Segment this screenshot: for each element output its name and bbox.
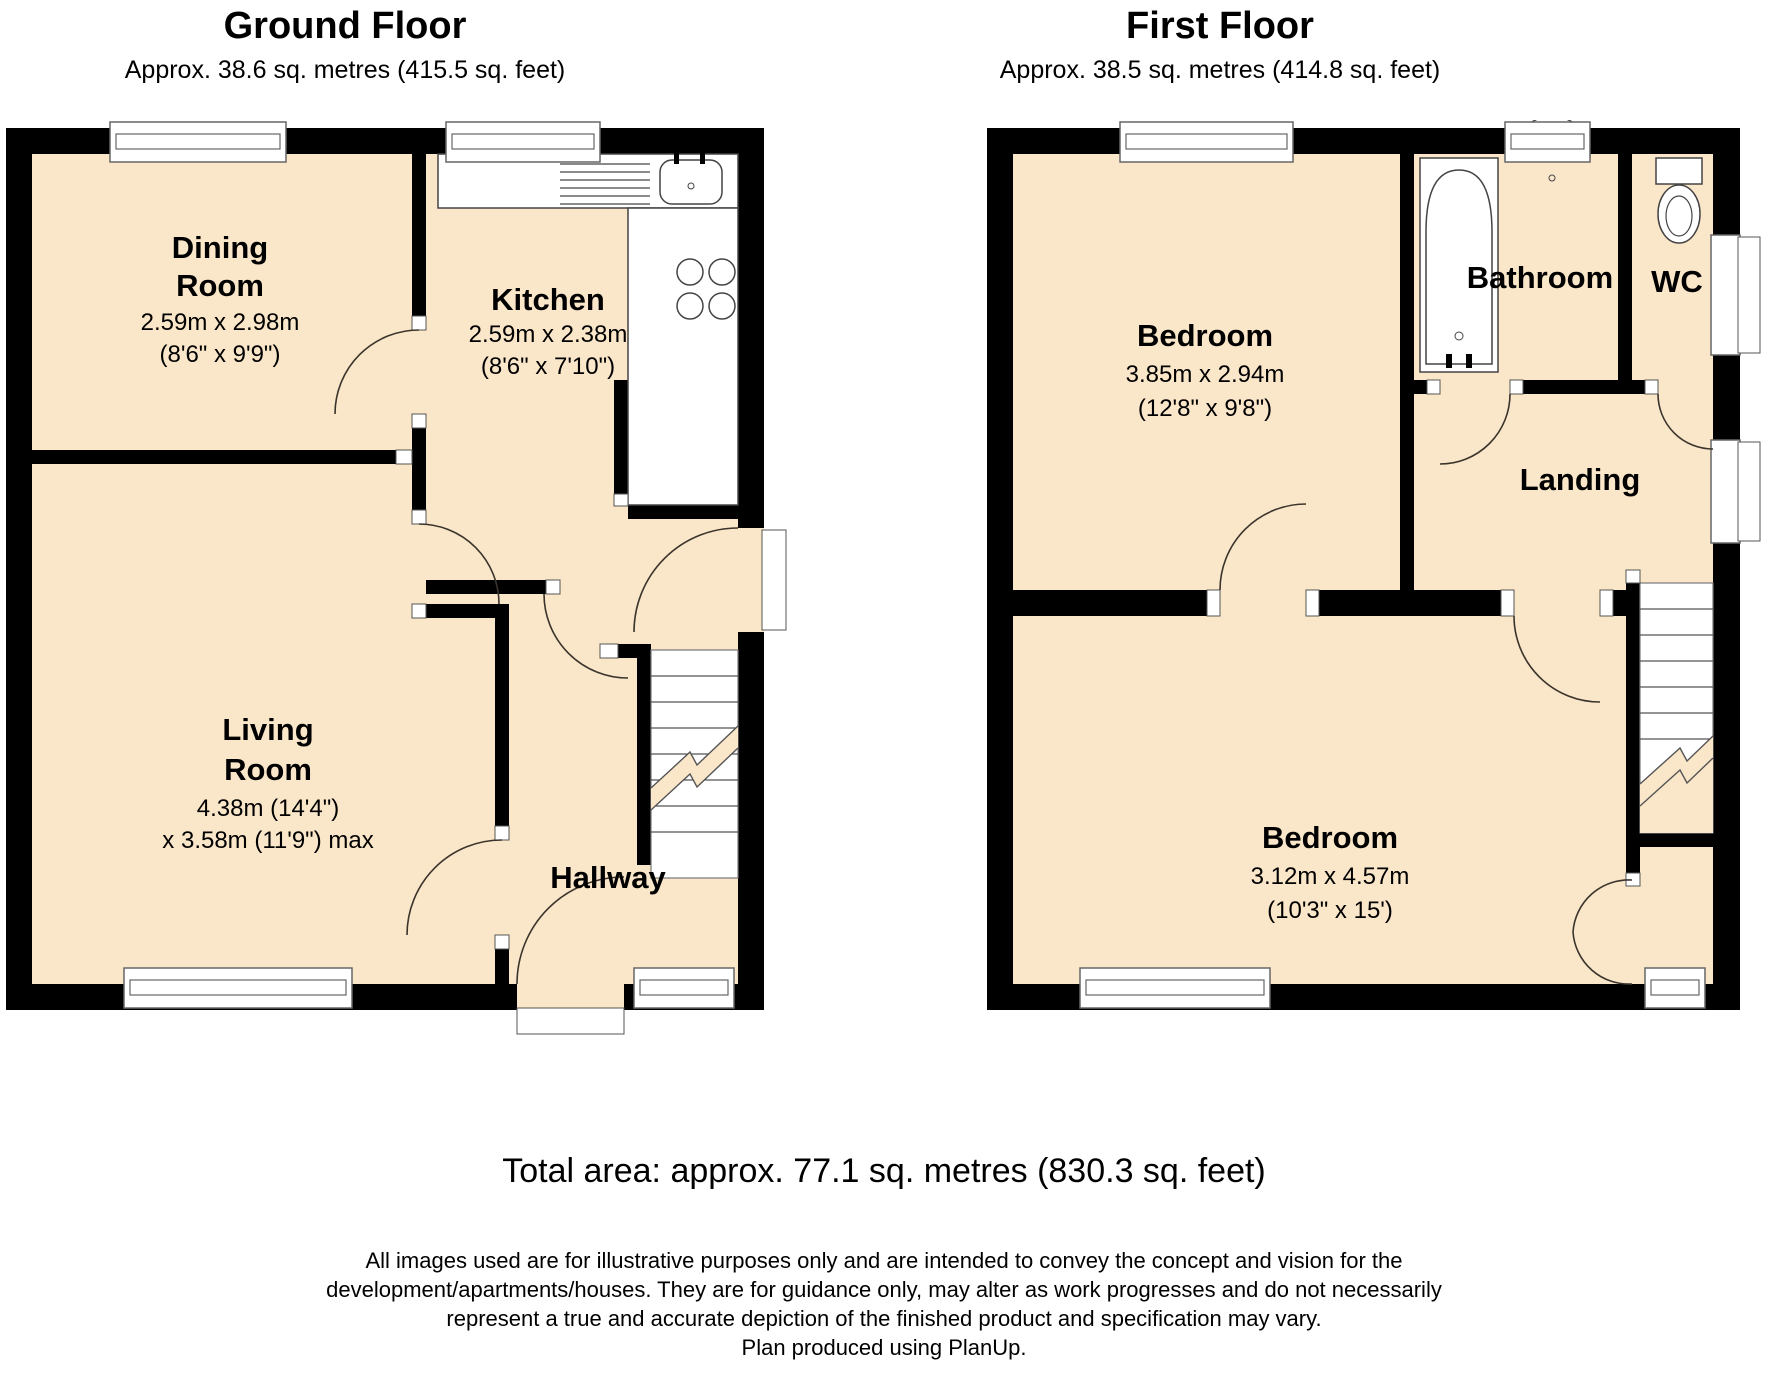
dining-window — [110, 122, 286, 162]
disclaimer-line3: represent a true and accurate depiction … — [0, 1304, 1768, 1333]
ground-floor-stairs — [651, 650, 738, 878]
wc-label: WC — [1651, 264, 1703, 299]
first-floor-stairs — [1640, 583, 1713, 833]
living-room-label: Living — [222, 712, 313, 747]
bedroom1-dims-imperial: (12'8" x 9'8") — [1138, 395, 1272, 422]
bedroom1-label: Bedroom — [1137, 318, 1273, 353]
ground-floor-titleblock: Ground Floor Approx. 38.6 sq. metres (41… — [0, 6, 690, 85]
floorplan-page: Ground Floor Approx. 38.6 sq. metres (41… — [0, 0, 1768, 1374]
sink-tap-icon — [700, 148, 705, 164]
living-room-label2: Room — [224, 752, 312, 787]
hallway-window — [634, 968, 734, 1008]
total-area-text: Total area: approx. 77.1 sq. metres (830… — [0, 1152, 1768, 1191]
first-floor-plan: Bedroom 3.85m x 2.94m (12'8" x 9'8") Bat… — [980, 120, 1768, 1045]
ground-floor-subtitle: Approx. 38.6 sq. metres (415.5 sq. feet) — [0, 56, 690, 85]
bedroom2-window — [1080, 968, 1270, 1008]
living-room-dims2: x 3.58m (11'9") max — [162, 827, 373, 854]
first-floor-subtitle: Approx. 38.5 sq. metres (414.8 sq. feet) — [870, 56, 1570, 85]
bathroom-label: Bathroom — [1467, 260, 1613, 295]
bathroom-window — [1505, 122, 1590, 162]
living-room-dims1: 4.38m (14'4") — [197, 795, 340, 822]
disclaimer-text: All images used are for illustrative pur… — [0, 1246, 1768, 1362]
bedroom2-dims-imperial: (10'3" x 15') — [1267, 897, 1393, 924]
dining-room-label2: Room — [176, 268, 264, 303]
bedroom1-dims-metric: 3.85m x 2.94m — [1126, 361, 1285, 388]
dining-room-dims-imperial: (8'6" x 9'9") — [160, 341, 281, 368]
landing-window — [1711, 440, 1760, 543]
back-door-opening — [738, 528, 764, 632]
living-room-window — [124, 968, 352, 1008]
disclaimer-line1: All images used are for illustrative pur… — [0, 1246, 1768, 1275]
hallway-label: Hallway — [550, 860, 666, 895]
kitchen-label: Kitchen — [491, 282, 605, 317]
toilet-bowl — [1658, 185, 1700, 243]
ground-floor-title: Ground Floor — [0, 6, 690, 48]
cupboard-window — [1645, 968, 1705, 1008]
ground-floor-plan: Dining Room 2.59m x 2.98m (8'6" x 9'9") … — [0, 120, 800, 1045]
disclaimer-line4: Plan produced using PlanUp. — [0, 1333, 1768, 1362]
kitchen-window — [446, 122, 600, 162]
bath-tap-icon — [1466, 354, 1472, 368]
bedroom1-window — [1120, 122, 1293, 162]
disclaimer-line2: development/apartments/houses. They are … — [0, 1275, 1768, 1304]
dining-room-label: Dining — [172, 230, 268, 265]
kitchen-dims-metric: 2.59m x 2.38m — [469, 321, 628, 348]
back-door-leaf — [762, 530, 786, 630]
kitchen-dims-imperial: (8'6" x 7'10") — [481, 353, 615, 380]
first-floor-title: First Floor — [870, 6, 1570, 48]
bedroom2-label: Bedroom — [1262, 820, 1398, 855]
first-floor-titleblock: First Floor Approx. 38.5 sq. metres (414… — [870, 6, 1570, 85]
sink-tap-icon — [674, 148, 679, 164]
bedroom2-dims-metric: 3.12m x 4.57m — [1251, 863, 1410, 890]
wc-window — [1711, 235, 1760, 355]
front-door-leaf — [517, 1008, 624, 1034]
kitchen-sink — [660, 160, 722, 204]
landing-label: Landing — [1520, 462, 1641, 497]
bath-tap-icon — [1446, 354, 1452, 368]
dining-room-dims-metric: 2.59m x 2.98m — [141, 309, 300, 336]
toilet-cistern — [1656, 158, 1702, 184]
kitchen-hob-counter — [628, 208, 738, 505]
front-door-opening — [517, 984, 624, 1010]
